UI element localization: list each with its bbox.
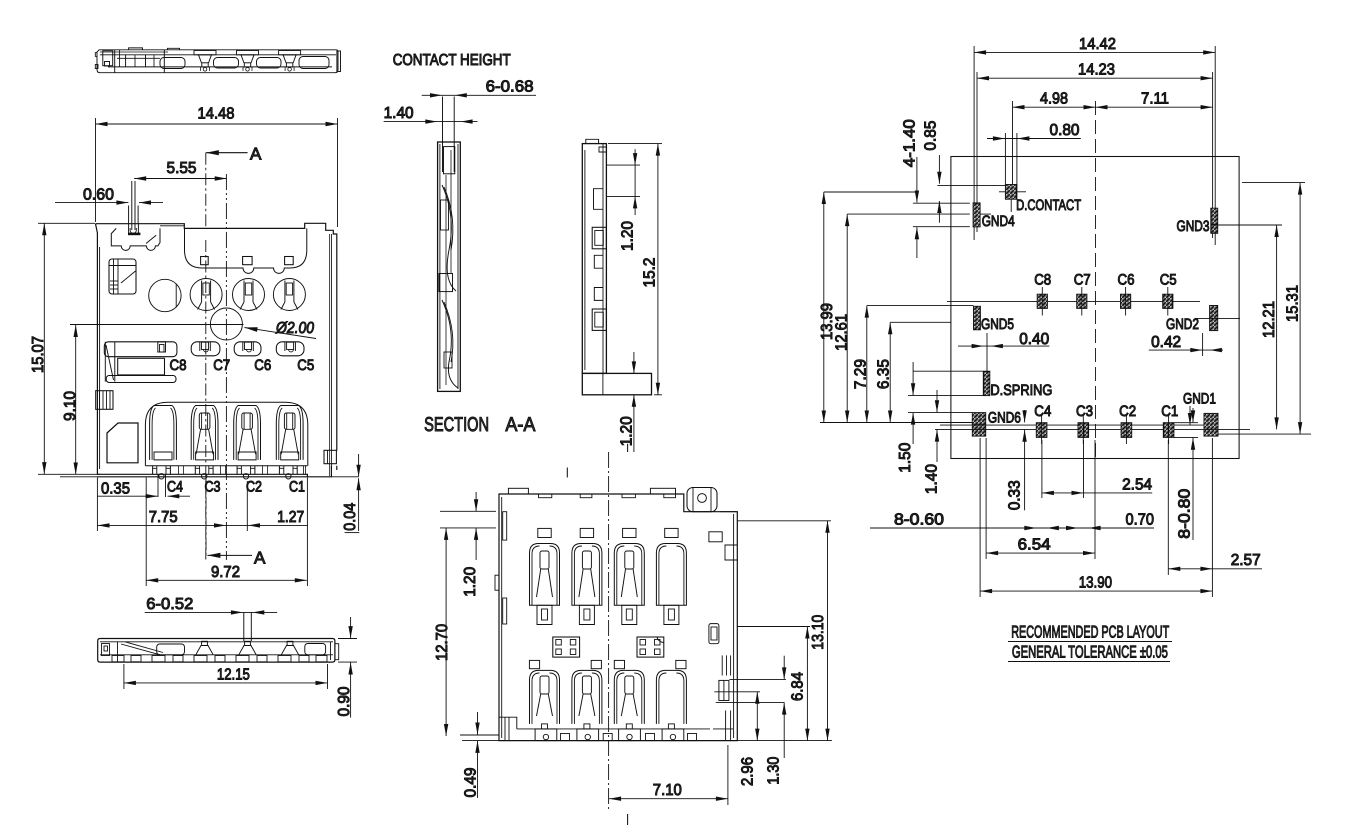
svg-text:12.15: 12.15 xyxy=(217,666,250,683)
svg-text:A: A xyxy=(254,549,266,568)
svg-text:12.70: 12.70 xyxy=(434,624,451,661)
svg-text:12.61: 12.61 xyxy=(833,314,850,351)
svg-text:2.96: 2.96 xyxy=(739,757,756,786)
svg-text:15.07: 15.07 xyxy=(30,336,47,373)
svg-text:C1: C1 xyxy=(1161,403,1178,420)
svg-text:6.84: 6.84 xyxy=(790,672,807,701)
svg-text:4-1.40: 4-1.40 xyxy=(901,119,918,167)
svg-text:6.54: 6.54 xyxy=(1018,537,1051,554)
svg-text:GND2: GND2 xyxy=(1166,316,1199,333)
svg-text:C2: C2 xyxy=(1119,403,1136,420)
svg-text:0.40: 0.40 xyxy=(1019,331,1049,348)
svg-text:6.35: 6.35 xyxy=(875,359,892,389)
svg-text:14.23: 14.23 xyxy=(1078,62,1115,79)
svg-text:0.85: 0.85 xyxy=(923,121,940,151)
svg-text:0.60: 0.60 xyxy=(83,187,114,204)
svg-text:2.54: 2.54 xyxy=(1122,476,1152,493)
svg-text:14.48: 14.48 xyxy=(198,106,235,123)
svg-text:C3: C3 xyxy=(1076,403,1093,420)
svg-text:13.10: 13.10 xyxy=(810,615,827,650)
svg-text:RECOMMENDED PCB LAYOUT: RECOMMENDED PCB LAYOUT xyxy=(1011,622,1169,641)
svg-text:C2: C2 xyxy=(246,479,262,496)
svg-text:C7: C7 xyxy=(1074,272,1091,289)
svg-text:15.2: 15.2 xyxy=(642,257,659,287)
svg-text:GND3: GND3 xyxy=(1177,218,1210,235)
svg-text:A: A xyxy=(250,145,262,164)
svg-text:C6: C6 xyxy=(254,357,271,374)
svg-text:7.10: 7.10 xyxy=(653,782,682,799)
svg-text:D.SPRING: D.SPRING xyxy=(990,382,1052,399)
svg-text:9.10: 9.10 xyxy=(62,391,79,421)
svg-text:14.42: 14.42 xyxy=(1079,36,1116,53)
svg-text:0.33: 0.33 xyxy=(1006,480,1023,510)
svg-text:C4: C4 xyxy=(1034,403,1051,420)
svg-text:7.11: 7.11 xyxy=(1141,91,1169,108)
svg-text:6-0.68: 6-0.68 xyxy=(486,79,534,96)
svg-text:C7: C7 xyxy=(213,357,230,374)
svg-text:0.42: 0.42 xyxy=(1151,334,1181,351)
svg-text:SECTION: SECTION xyxy=(424,414,489,436)
svg-text:15.31: 15.31 xyxy=(1285,285,1302,322)
svg-text:C8: C8 xyxy=(1034,272,1051,289)
svg-text:GND6: GND6 xyxy=(988,409,1021,426)
svg-text:9.72: 9.72 xyxy=(211,564,240,581)
svg-text:Ø2.00: Ø2.00 xyxy=(275,320,314,337)
svg-text:1.27: 1.27 xyxy=(277,509,304,526)
svg-text:8-0.80: 8-0.80 xyxy=(1176,489,1193,539)
svg-text:7.75: 7.75 xyxy=(149,509,178,526)
svg-text:7.29: 7.29 xyxy=(852,359,869,389)
svg-text:GND1: GND1 xyxy=(1183,391,1216,408)
svg-text:D.CONTACT: D.CONTACT xyxy=(1016,197,1081,214)
svg-text:CONTACT HEIGHT: CONTACT HEIGHT xyxy=(393,52,511,69)
svg-text:4.98: 4.98 xyxy=(1040,91,1068,108)
svg-text:1.50: 1.50 xyxy=(897,443,914,473)
svg-text:C5: C5 xyxy=(297,357,314,374)
svg-text:C1: C1 xyxy=(289,479,305,496)
svg-text:6-0.52: 6-0.52 xyxy=(146,596,193,613)
svg-text:1.20: 1.20 xyxy=(462,567,479,597)
svg-text:GENERAL TOLERANCE ±0.05: GENERAL TOLERANCE ±0.05 xyxy=(1012,642,1168,661)
svg-text:1.30: 1.30 xyxy=(765,757,782,785)
svg-text:0.35: 0.35 xyxy=(101,481,130,498)
svg-text:2.57: 2.57 xyxy=(1231,552,1261,569)
svg-text:C6: C6 xyxy=(1118,272,1135,289)
svg-text:0.70: 0.70 xyxy=(1126,512,1155,529)
svg-text:12.21: 12.21 xyxy=(1261,301,1278,338)
svg-text:1.20: 1.20 xyxy=(620,221,637,251)
svg-text:A-A: A-A xyxy=(505,414,536,436)
svg-text:1.20: 1.20 xyxy=(618,416,635,446)
svg-text:0.80: 0.80 xyxy=(1050,122,1080,139)
svg-text:0.04: 0.04 xyxy=(342,503,359,531)
svg-text:C4: C4 xyxy=(167,479,183,496)
svg-text:0.90: 0.90 xyxy=(336,686,353,716)
svg-text:0.49: 0.49 xyxy=(463,767,480,797)
svg-text:C3: C3 xyxy=(205,479,221,496)
svg-text:GND4: GND4 xyxy=(982,213,1015,230)
svg-text:GND5: GND5 xyxy=(981,316,1014,333)
svg-text:1.40: 1.40 xyxy=(923,464,940,494)
svg-text:1.40: 1.40 xyxy=(384,105,414,122)
svg-text:C8: C8 xyxy=(170,357,187,374)
svg-text:8-0.60: 8-0.60 xyxy=(894,512,944,529)
svg-text:C5: C5 xyxy=(1160,272,1177,289)
svg-text:5.55: 5.55 xyxy=(167,160,197,177)
svg-text:13.90: 13.90 xyxy=(1079,575,1112,592)
